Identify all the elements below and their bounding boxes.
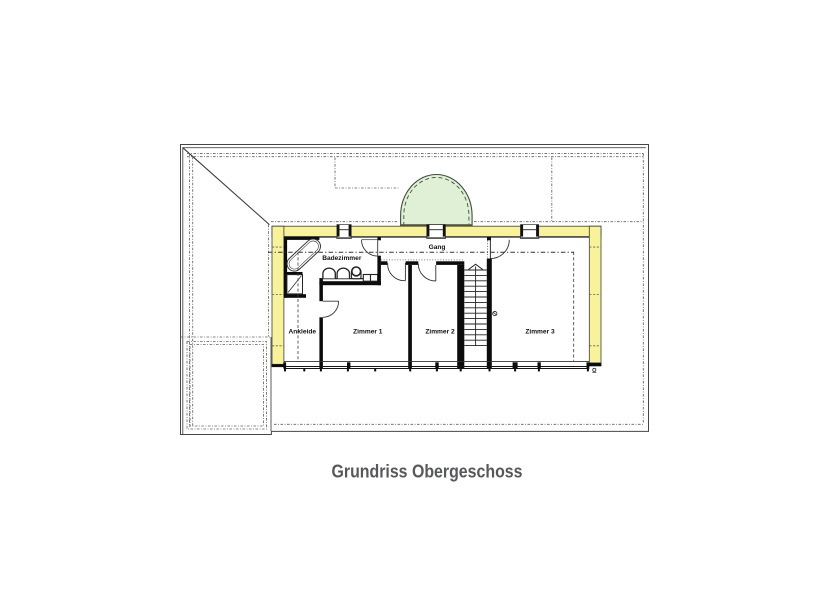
- svg-text:Gang: Gang: [429, 244, 446, 251]
- svg-text:Zimmer 3: Zimmer 3: [525, 329, 555, 336]
- svg-text:Zimmer 1: Zimmer 1: [353, 329, 383, 336]
- svg-text:Grundriss Obergeschoss: Grundriss Obergeschoss: [332, 461, 523, 482]
- svg-text:Ankleide: Ankleide: [289, 329, 317, 336]
- svg-text:Badezimmer: Badezimmer: [322, 255, 362, 262]
- svg-text:Zimmer 2: Zimmer 2: [425, 329, 455, 336]
